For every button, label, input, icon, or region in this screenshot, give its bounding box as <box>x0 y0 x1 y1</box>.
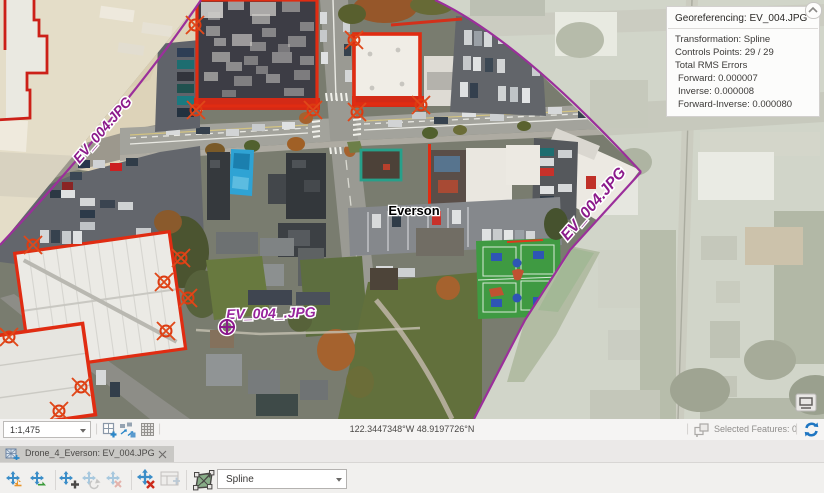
svg-text:EV_004_.JPG: EV_004_.JPG <box>226 304 316 322</box>
svg-text:Everson: Everson <box>388 203 439 218</box>
